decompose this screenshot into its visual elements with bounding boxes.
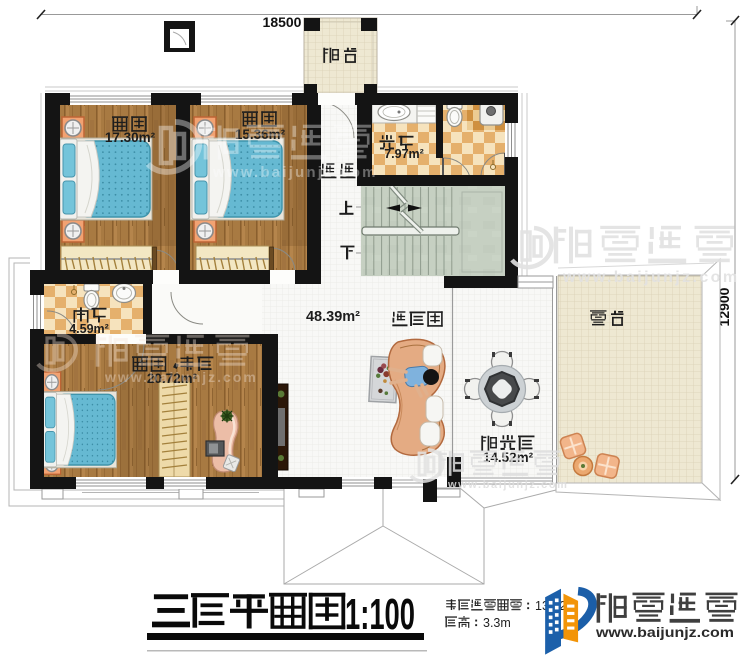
svg-text:www.baijunjz.com: www.baijunjz.com bbox=[595, 624, 734, 640]
svg-text:48.39m²: 48.39m² bbox=[306, 309, 360, 325]
svg-text:3.3m: 3.3m bbox=[483, 616, 511, 630]
svg-text:www.baijunjz.com: www.baijunjz.com bbox=[562, 269, 740, 286]
svg-text:17.30m²: 17.30m² bbox=[105, 130, 156, 145]
svg-text:www.baijunjz.com: www.baijunjz.com bbox=[212, 164, 378, 181]
svg-text:4.59m²: 4.59m² bbox=[69, 322, 109, 336]
svg-text:7.97m²: 7.97m² bbox=[384, 147, 424, 161]
svg-text:www.baijunjz.com: www.baijunjz.com bbox=[104, 369, 258, 385]
svg-text:1:100: 1:100 bbox=[345, 590, 415, 639]
svg-text:www.baijunjz.com: www.baijunjz.com bbox=[447, 479, 569, 491]
svg-text:18500: 18500 bbox=[263, 14, 302, 30]
